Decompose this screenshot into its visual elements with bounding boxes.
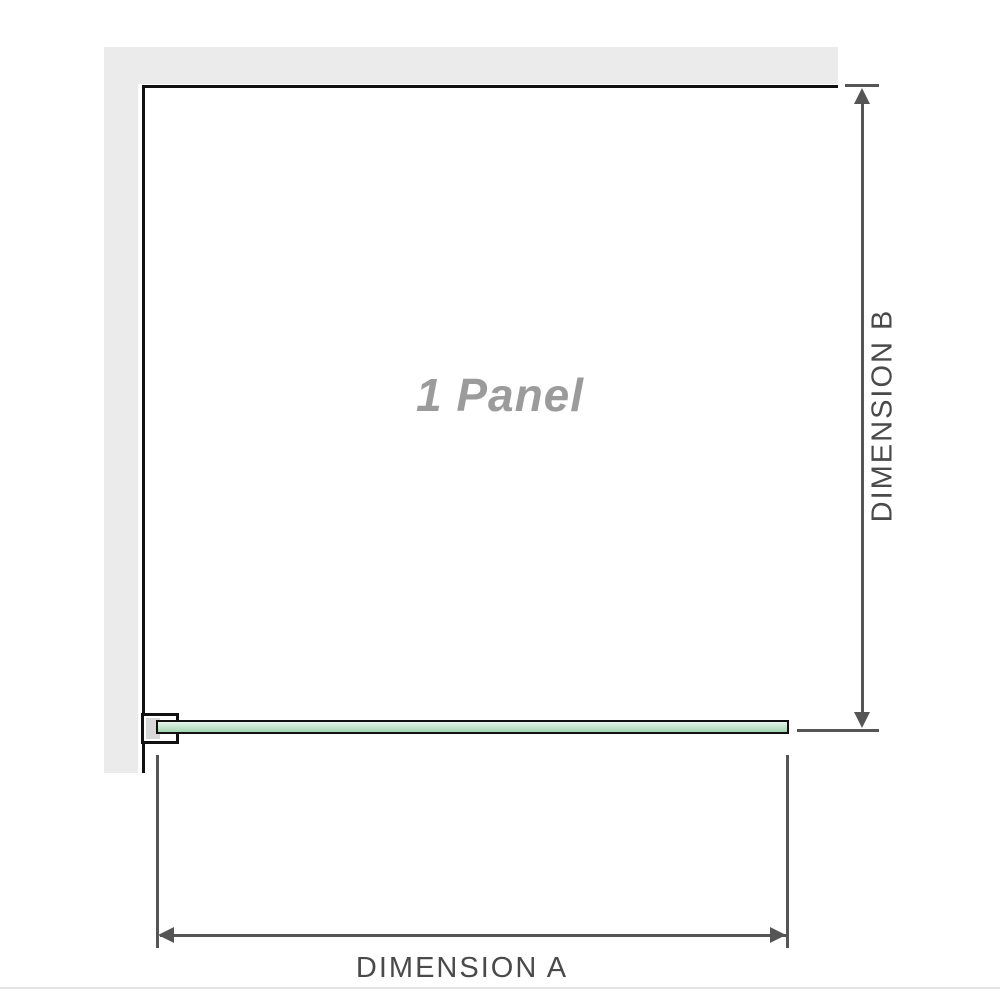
dimension-a-label: DIMENSION A xyxy=(312,952,612,985)
dimension-b-tick-bottom xyxy=(797,729,879,732)
wall-top-strip xyxy=(104,47,838,84)
dimension-a-line xyxy=(160,934,786,937)
dimension-a-arrowhead-right-icon xyxy=(770,927,786,943)
wall-left-strip xyxy=(104,47,138,773)
dimension-b-arrowhead-up-icon xyxy=(854,88,870,104)
dimension-a-tick-right xyxy=(786,755,789,948)
bottom-divider-line xyxy=(0,987,1000,989)
dimension-b-label: DIMENSION B xyxy=(867,308,900,522)
dimension-a-arrowhead-left-icon xyxy=(158,927,174,943)
panel-count-watermark: 1 Panel xyxy=(340,368,660,422)
dimension-b-line xyxy=(861,104,864,712)
panel-outline xyxy=(142,85,838,773)
shower-panel-diagram: 1 Panel DIMENSION B DIMENSION A xyxy=(0,0,1000,1000)
dimension-b-arrowhead-down-icon xyxy=(854,712,870,728)
dimension-b-tick-top xyxy=(845,84,879,87)
dimension-b-label-wrap: DIMENSION B xyxy=(866,265,900,565)
dimension-a-tick-left xyxy=(156,755,159,948)
glass-panel-bar xyxy=(156,720,789,734)
